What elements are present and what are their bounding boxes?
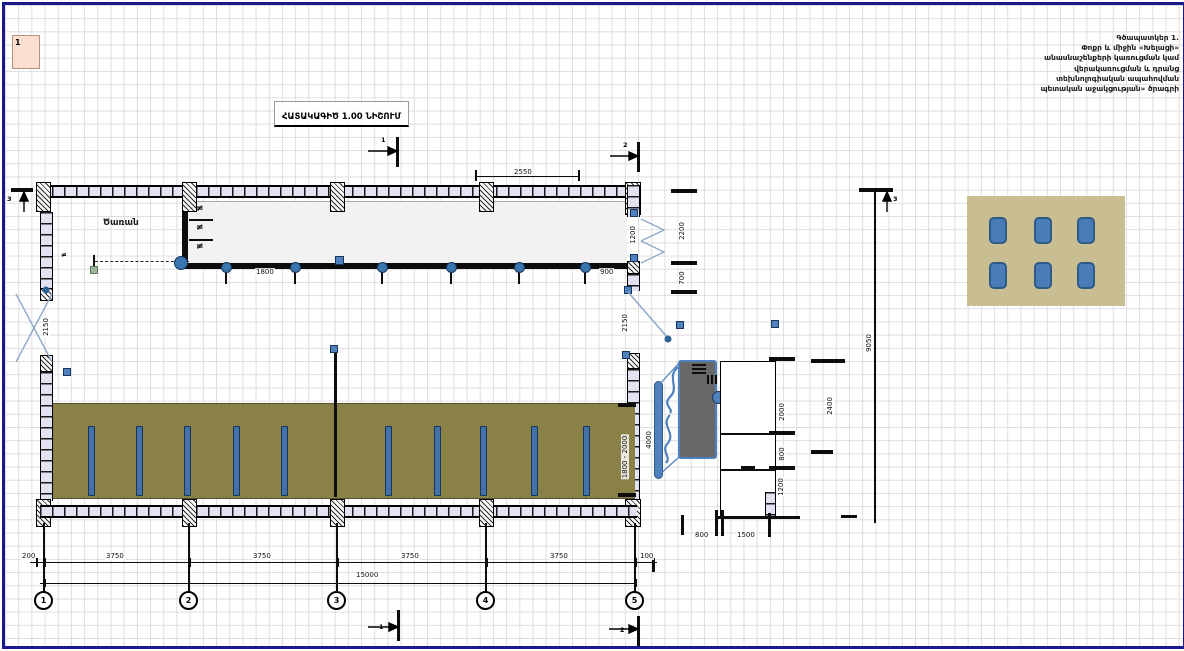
dim-label-2150-left: 2150 [42, 317, 50, 337]
stall-width-tick-1 [618, 403, 636, 407]
section3-left-label: 3 [7, 195, 12, 203]
dim-label-bay4: 3750 [549, 552, 569, 560]
annex-dash-right [841, 515, 857, 518]
fence-handle[interactable] [335, 256, 344, 265]
dim-label-1800: 1800 [255, 268, 275, 276]
stall-pill-6 [1077, 262, 1095, 289]
dim-label-bay2: 3750 [252, 552, 272, 560]
stall-width-tick-2 [618, 493, 636, 497]
stall-pill-2 [1034, 217, 1052, 244]
drinker-stem-6 [584, 272, 586, 284]
dim-row2-t2 [635, 579, 637, 587]
axis-bubble-5-label: 5 [632, 596, 638, 605]
handle-door-right-1[interactable] [624, 286, 632, 294]
handle-door-top-2[interactable] [630, 254, 638, 262]
left-wall-upper [40, 212, 53, 288]
stall-pill-4 [989, 262, 1007, 289]
feed-room [188, 201, 627, 264]
section1-bottom-label: 1 [379, 623, 384, 631]
drinker-stem-2 [294, 272, 296, 284]
feeding-stalls-block [967, 196, 1125, 306]
section3-right-label: 3 [893, 195, 898, 203]
dim-label-bay1: 3750 [105, 552, 125, 560]
stall-divider-5[interactable] [281, 426, 288, 496]
annex-tick-b1 [715, 510, 718, 536]
dim-row1-t5 [635, 558, 637, 567]
drinker-stem-5 [518, 272, 520, 284]
feed-rail-line-2 [189, 239, 213, 241]
note-line-2: Փոքր և միջին «Խելացի» [1029, 43, 1179, 53]
dim-label-annex-800: 800 [694, 531, 709, 539]
annex-tick-c [768, 513, 771, 537]
plan-title-box: ՀԱՏԱԿԱԳԻԾ 1.00 ՆԻՇՈՒՄ [274, 101, 409, 127]
axis-bubble-2-label: 2 [186, 596, 192, 605]
left-wall-hatch-1 [40, 288, 53, 301]
section1-bottom-bar [397, 610, 400, 641]
stall-divider-3[interactable] [184, 426, 191, 496]
dim-label-800: 800 [778, 446, 786, 461]
right-upper-door[interactable] [641, 219, 664, 263]
sheet-corner-label: 1 [15, 38, 21, 47]
feed-line-handle[interactable] [90, 266, 98, 274]
section3-left-dash [11, 188, 33, 192]
note-line-1: Գծապատկեր 1. [1029, 33, 1179, 43]
dim-label-4000: 4000 [645, 430, 653, 450]
dim-label-100: 100 [639, 552, 654, 560]
note-line-5: տեխնոլոգիական ապահովման [1029, 74, 1179, 84]
annex-divider-1 [720, 433, 776, 435]
axis-bubble-1: 1 [34, 591, 53, 610]
right-door-dot [665, 336, 672, 343]
section1-top-bar [396, 137, 399, 167]
right-chain-tick-3 [671, 290, 697, 294]
top-pier-3 [330, 182, 345, 212]
top-pier-4 [479, 182, 494, 212]
feeder-symbol-2: ≠ [196, 224, 204, 233]
handle-left-wall[interactable] [63, 368, 71, 376]
center-divider-line[interactable] [334, 351, 337, 497]
drinker-3[interactable] [377, 262, 388, 273]
dim-row2-line [40, 583, 637, 584]
dim-row1-line [30, 562, 657, 563]
drinker-stem-1 [225, 272, 227, 284]
stall-divider-4[interactable] [233, 426, 240, 496]
handle-door-top-1[interactable] [630, 209, 638, 217]
right-chain-tick-1 [671, 189, 697, 193]
stall-pill-5 [1034, 262, 1052, 289]
right-lower-door[interactable] [628, 292, 668, 338]
annex-inner-dash [741, 466, 755, 469]
stall-divider-10[interactable] [583, 426, 590, 496]
annex-tick-b2 [721, 510, 724, 536]
machine-comb-1 [707, 375, 709, 384]
drinker-stem-3 [381, 272, 383, 284]
drinker-5[interactable] [514, 262, 525, 273]
drawing-canvas[interactable]: 1 ՀԱՏԱԿԱԳԻԾ 1.00 ՆԻՇՈՒՄ Գծապատկեր 1. Փոք… [2, 2, 1184, 649]
annex-width-tick-1 [811, 359, 845, 363]
dim-label-900: 900 [599, 268, 614, 276]
dim-label-2400: 2400 [826, 396, 834, 416]
section3-right-dash [859, 188, 893, 192]
dim2550-tick-2 [578, 170, 580, 181]
right-chain-tick-2 [671, 261, 697, 265]
machine-grill-2 [692, 368, 706, 370]
machine-comb-2 [711, 375, 713, 384]
feeder-symbol-3: ≠ [196, 243, 204, 252]
room-label: Ծառան [103, 218, 139, 228]
drinker-6[interactable] [580, 262, 591, 273]
right-wall-hatch-1 [627, 261, 640, 274]
top-pier-1 [36, 182, 51, 212]
note-line-4: վերակառուցման և դրանց [1029, 64, 1179, 74]
handle-annex[interactable] [771, 320, 779, 328]
annex-chain-tick-1 [769, 357, 795, 361]
dim2550-line [475, 176, 580, 177]
drinker-1[interactable] [221, 262, 232, 273]
annex-chain-tick-2 [769, 431, 795, 435]
feeder-symbol-small: ≠ [61, 251, 67, 260]
axis-bubble-1-label: 1 [41, 596, 47, 605]
stall-pill-1 [989, 217, 1007, 244]
dim-label-1200-annex: 1200 [777, 477, 785, 497]
machine-grill-1 [692, 364, 706, 366]
dim-label-2200: 2200 [678, 221, 686, 241]
section1-top-label: 1 [381, 136, 386, 144]
dim-label-200: 200 [21, 552, 36, 560]
axis-bubble-4: 4 [476, 591, 495, 610]
left-wall-hatch-2 [40, 355, 53, 372]
dim-row1-t6 [652, 558, 655, 572]
annex-tick-a [681, 515, 684, 535]
left-wall-lower [40, 372, 53, 501]
stall-divider-2[interactable] [136, 426, 143, 496]
dim-label-2000: 2000 [778, 402, 786, 422]
dim-label-bay3: 3750 [400, 552, 420, 560]
dim-row2-t1 [44, 579, 46, 587]
feed-fence-horizontal [182, 263, 635, 269]
dim-label-annex-1500: 1500 [736, 531, 756, 539]
handle-door-right-2[interactable] [622, 351, 630, 359]
feed-rail-line-1 [189, 219, 213, 221]
drinker-4[interactable] [446, 262, 457, 273]
plan-title: ՀԱՏԱԿԱԳԻԾ 1.00 ՆԻՇՈՒՄ [282, 112, 401, 122]
section2-bottom-label: 2 [620, 626, 625, 634]
stall-divider-1[interactable] [88, 426, 95, 496]
feeder-symbol-1: ≠ [196, 205, 204, 214]
note-line-3: անասնաշենքերի կառուցման կամ [1029, 53, 1179, 63]
handle-yard[interactable] [676, 321, 684, 329]
linework-overlay [5, 5, 1184, 649]
dim-label-1200-door: 1200 [629, 225, 637, 245]
program-note: Գծապատկեր 1. Փոքր և միջին «Խելացի» անասն… [1029, 33, 1179, 94]
note-line-6: պետական աջակցության» ծրագրի [1029, 84, 1179, 94]
drinker-stem-4 [450, 272, 452, 284]
dim-label-15000: 15000 [355, 571, 379, 579]
dim-row1-t4 [486, 558, 488, 567]
stall-divider-7[interactable] [434, 426, 441, 496]
dim-row1-t3 [337, 558, 339, 567]
machine-grill-3 [692, 372, 706, 374]
section2-top-label: 2 [623, 141, 628, 149]
axis-bubble-3: 3 [327, 591, 346, 610]
annex-chain-tick-3 [769, 466, 795, 470]
annex-divider-2 [720, 469, 776, 471]
stall-divider-9[interactable] [531, 426, 538, 496]
stall-divider-6[interactable] [385, 426, 392, 496]
dim-label-2150-right: 2150 [621, 313, 629, 333]
dim-row1-t2 [189, 558, 191, 567]
stall-pill-3 [1077, 217, 1095, 244]
overall-height-line [874, 191, 876, 523]
dim-label-700: 700 [678, 270, 686, 285]
dim-label-2550: 2550 [513, 168, 533, 176]
dim-label-9050: 9050 [865, 333, 873, 353]
axis-bubble-3-label: 3 [334, 596, 340, 605]
top-pier-2 [182, 182, 197, 212]
dim-row1-t1 [44, 558, 46, 567]
annex-width-tick-2 [811, 450, 833, 454]
drinker-2[interactable] [290, 262, 301, 273]
dim2550-tick-1 [475, 170, 477, 181]
divider-handle[interactable] [330, 345, 338, 353]
stall-divider-8[interactable] [480, 426, 487, 496]
annex-bottom-line [715, 516, 800, 519]
axis-bubble-2: 2 [179, 591, 198, 610]
section2-bottom-bar [637, 616, 640, 646]
section2-top-bar [637, 142, 640, 172]
dim-label-stall-length: 1800 - 2000 [621, 435, 629, 480]
axis-bubble-4-label: 4 [483, 596, 489, 605]
feed-post-large[interactable] [174, 256, 188, 270]
sheet-corner-box: 1 [12, 35, 40, 69]
feed-capsule[interactable] [654, 381, 663, 479]
axis-bubble-5: 5 [625, 591, 644, 610]
machine-comb-3 [715, 375, 717, 384]
